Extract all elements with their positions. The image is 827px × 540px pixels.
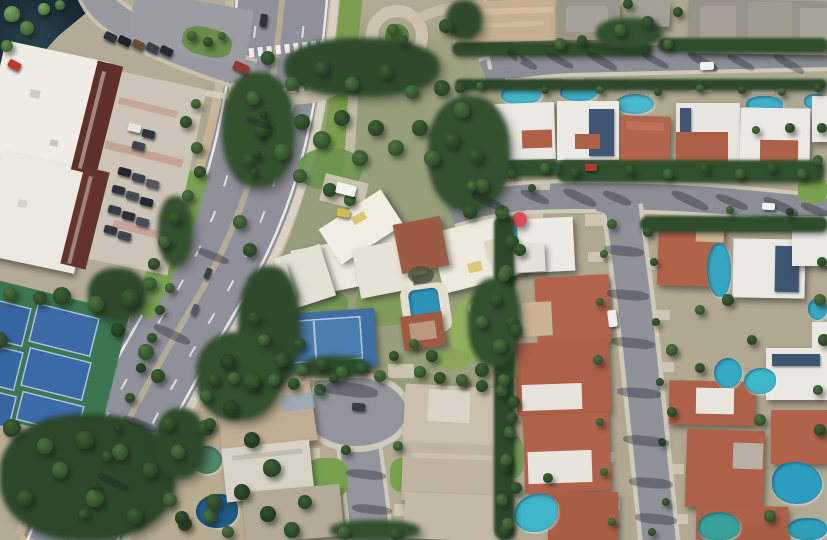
red-car	[585, 164, 597, 171]
tree	[673, 7, 683, 17]
car	[352, 403, 366, 412]
swimming-pool	[714, 358, 742, 388]
tree	[374, 370, 386, 382]
tree	[191, 99, 201, 109]
tree	[275, 353, 289, 367]
tree	[17, 490, 33, 506]
tree	[596, 86, 604, 94]
tree	[244, 432, 260, 448]
tree	[243, 243, 257, 257]
tree	[738, 86, 746, 94]
roof-tile-accent	[522, 129, 553, 148]
tree	[52, 462, 68, 478]
tree	[163, 493, 177, 507]
tree	[667, 407, 677, 417]
roof-section	[521, 301, 553, 337]
tree	[155, 305, 165, 315]
tree	[663, 169, 673, 179]
tree-canopy	[446, 0, 482, 40]
tree	[285, 77, 299, 91]
tree	[510, 324, 522, 336]
tree	[147, 333, 157, 343]
roof-tile-accent	[575, 134, 600, 149]
roof-section	[427, 389, 471, 423]
tree	[315, 61, 329, 75]
white-car	[607, 310, 618, 328]
tree	[111, 323, 125, 337]
tree	[379, 65, 393, 79]
tree	[735, 169, 745, 179]
tree	[293, 169, 307, 183]
tree	[650, 258, 658, 266]
tree	[223, 400, 239, 416]
house-roof	[771, 410, 827, 464]
tree	[541, 86, 549, 94]
tree	[398, 35, 408, 45]
tree	[121, 289, 139, 307]
tree	[506, 412, 518, 424]
tree	[666, 344, 678, 356]
tree	[496, 494, 508, 506]
house-roof	[548, 492, 618, 540]
white-car	[762, 203, 775, 211]
tree	[813, 385, 823, 395]
tree	[143, 277, 157, 291]
tree	[161, 417, 175, 431]
tree	[722, 294, 734, 306]
tree	[37, 438, 53, 454]
tree-canopy	[158, 196, 192, 266]
tree	[514, 244, 526, 256]
tree	[125, 393, 135, 403]
tree	[508, 396, 520, 408]
tree	[1, 40, 13, 52]
tree	[148, 258, 160, 270]
tree	[338, 526, 350, 538]
tree	[368, 120, 384, 136]
tree	[817, 257, 827, 267]
tree	[797, 169, 807, 179]
tree	[767, 163, 777, 173]
tree	[171, 445, 185, 459]
tree	[700, 163, 710, 173]
tree	[504, 426, 516, 438]
roof-ridge	[626, 121, 664, 130]
tree	[258, 334, 270, 346]
swimming-pool	[698, 512, 740, 540]
tree	[469, 149, 483, 163]
tree	[414, 366, 426, 378]
tree	[220, 354, 236, 370]
tree	[158, 236, 170, 248]
tree	[142, 462, 158, 478]
tree	[498, 270, 510, 282]
tree	[652, 318, 660, 326]
tree	[260, 111, 268, 119]
tree	[696, 84, 704, 92]
tree	[754, 414, 766, 426]
tree	[341, 445, 351, 455]
tree	[296, 364, 308, 376]
tree	[426, 350, 438, 362]
tree	[203, 37, 213, 47]
tree	[476, 380, 488, 392]
tree	[455, 83, 465, 93]
tree	[352, 150, 368, 166]
tree	[218, 32, 226, 40]
tree	[818, 334, 827, 346]
tree	[263, 459, 281, 477]
tree	[607, 219, 617, 229]
tree	[388, 140, 404, 156]
tree	[476, 316, 488, 328]
house-roof	[812, 96, 827, 142]
tree	[206, 494, 222, 510]
tree	[389, 351, 399, 361]
tree	[643, 227, 653, 237]
tree	[76, 431, 94, 449]
tree	[726, 206, 734, 214]
tree	[814, 84, 822, 92]
tree	[294, 338, 306, 350]
tree	[409, 339, 419, 349]
swimming-pool	[707, 243, 731, 297]
tree	[253, 151, 261, 159]
tree	[507, 169, 517, 179]
tree	[817, 123, 827, 133]
mansion-courtyard	[408, 266, 434, 284]
tree	[246, 91, 260, 105]
tree	[38, 3, 50, 15]
tree	[288, 378, 300, 390]
tree	[424, 150, 440, 166]
tree	[814, 424, 826, 436]
tree	[476, 82, 484, 90]
tree	[656, 378, 664, 386]
tree	[502, 518, 514, 530]
tree	[268, 374, 280, 386]
tree	[53, 287, 71, 305]
tree	[316, 358, 328, 370]
tree	[298, 495, 312, 509]
tree	[608, 518, 616, 526]
tree	[260, 506, 276, 522]
roof-section	[522, 383, 583, 411]
tree	[200, 390, 212, 402]
tree	[233, 215, 247, 229]
driveway	[388, 364, 414, 378]
tree	[248, 376, 260, 388]
tree	[813, 155, 823, 165]
tree	[510, 482, 522, 494]
tree	[102, 451, 112, 461]
tree	[405, 85, 419, 99]
tree	[390, 528, 402, 540]
tree	[3, 287, 17, 301]
tree	[596, 298, 604, 306]
swimming-pool	[772, 462, 822, 504]
tree	[577, 35, 587, 45]
tree	[454, 102, 470, 118]
putting-green	[438, 348, 470, 370]
tree	[554, 38, 566, 50]
tree	[356, 362, 368, 374]
tree	[112, 444, 128, 460]
hedge-row	[556, 160, 824, 182]
tree	[614, 24, 626, 36]
tree	[654, 88, 662, 96]
tree	[648, 528, 656, 536]
tree	[208, 374, 220, 386]
tree	[274, 144, 290, 160]
tree	[540, 163, 550, 173]
tree	[191, 142, 203, 154]
tree	[625, 165, 635, 175]
tree	[695, 305, 705, 315]
tree	[3, 419, 21, 437]
roof-section	[527, 450, 592, 484]
tree	[490, 294, 502, 306]
tree	[543, 473, 553, 483]
tree	[600, 468, 608, 476]
tree	[127, 508, 143, 524]
tree	[642, 16, 654, 28]
hedge-row	[658, 38, 827, 52]
tree	[151, 369, 165, 383]
tree	[752, 126, 760, 134]
tree	[165, 283, 175, 293]
tree	[182, 190, 194, 202]
tree	[203, 509, 217, 523]
tree	[242, 154, 254, 166]
tree	[138, 344, 154, 360]
tree	[456, 374, 468, 386]
tree	[345, 77, 359, 91]
driveway	[670, 464, 684, 474]
tree	[284, 522, 300, 538]
tree	[475, 179, 489, 193]
tree	[79, 509, 89, 519]
tree	[412, 120, 428, 136]
tree	[204, 418, 216, 430]
tree	[387, 24, 399, 36]
tree	[493, 339, 507, 353]
white-car	[700, 62, 714, 70]
tree	[593, 355, 603, 365]
tree	[33, 291, 47, 305]
tree	[393, 441, 403, 451]
tree	[434, 80, 450, 96]
tree	[175, 511, 189, 525]
tree	[662, 498, 670, 506]
driveway	[585, 214, 603, 226]
tree	[596, 418, 604, 426]
tree	[20, 21, 34, 35]
solar-panels	[772, 354, 820, 366]
tree	[764, 510, 776, 522]
tree	[234, 484, 250, 500]
satellite-map-canvas[interactable]	[0, 0, 827, 540]
driveway	[660, 362, 674, 372]
tree	[814, 294, 826, 306]
tree	[294, 114, 310, 130]
tree	[498, 374, 510, 386]
tree	[434, 372, 446, 384]
tree	[500, 454, 512, 466]
tree	[187, 31, 197, 41]
tree	[334, 110, 350, 126]
tree	[55, 0, 65, 10]
tree	[439, 19, 453, 33]
tree	[114, 424, 122, 432]
tree	[86, 489, 104, 507]
tree	[747, 335, 757, 345]
tree	[570, 167, 580, 177]
tree	[778, 88, 786, 96]
tree	[136, 363, 146, 373]
roof-section	[733, 442, 764, 469]
tree	[194, 166, 206, 178]
tree	[222, 526, 234, 538]
tree	[91, 482, 99, 490]
tree	[4, 6, 20, 22]
roof-section	[696, 388, 734, 415]
tree	[180, 116, 192, 128]
hedge-row	[640, 216, 827, 232]
tree	[228, 372, 240, 384]
tree	[313, 131, 331, 149]
tree	[463, 205, 477, 219]
swimming-pool	[744, 368, 776, 394]
tree	[444, 132, 460, 148]
tree	[663, 39, 673, 49]
tree	[475, 363, 489, 377]
tree	[785, 123, 795, 133]
tree	[467, 181, 477, 191]
swimming-pool	[788, 518, 827, 540]
tree	[248, 312, 260, 324]
tree	[250, 168, 258, 176]
patio-umbrella	[512, 212, 527, 227]
hedge-row	[455, 79, 827, 90]
swimming-pool	[616, 94, 654, 114]
tree	[169, 212, 181, 224]
tree	[261, 51, 275, 65]
tree	[695, 363, 705, 373]
tree	[88, 296, 104, 312]
